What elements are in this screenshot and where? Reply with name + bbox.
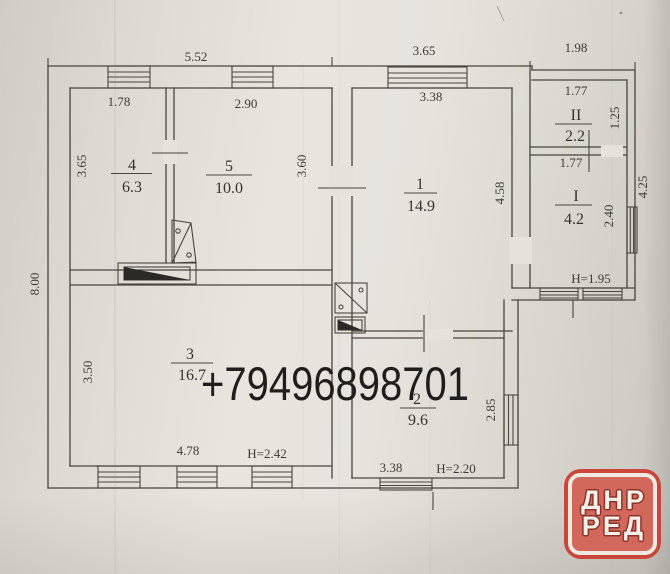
dim-room4-left: 3.65 [74,155,89,178]
agency-logo-inner: ДНР РЕД [568,473,657,555]
dim-room2-right: 2.85 [483,399,498,422]
dim-roomII-right: 1.25 [607,107,622,130]
room-II-area: 2.2 [565,128,585,145]
room-5-label: 5 10.0 [206,158,252,197]
agency-logo: ДНР РЕД [564,469,661,559]
room-II-label: II 2.2 [555,107,592,145]
room-II-number: II [571,107,582,124]
dim-room5-top: 2.90 [235,96,258,111]
dim-room5-right: 3.60 [294,155,309,178]
dim-room3-height: H=2.42 [247,446,286,461]
dim-left-800: 8.00 [27,273,42,296]
room-5-number: 5 [225,158,233,175]
room-2-area: 9.6 [408,412,428,429]
dim-roomI-right: 2.40 [601,205,616,228]
dim-roomII-top: 1.77 [565,83,588,98]
dim-room2-bottom: 3.38 [380,460,403,475]
window-bottom-room3-3 [252,466,292,488]
agency-logo-line2: РЕД [579,514,646,540]
room-I-area: 4.2 [564,211,584,228]
dim-room4-top: 1.78 [108,94,131,109]
phone-watermark: +79496898701 [201,357,469,410]
window-top-room1 [388,67,467,88]
room-I-label: I 4.2 [555,188,592,228]
floor-plan-scan: 5.52 3.65 1.98 8.00 1.78 2.90 3.65 3.60 … [0,0,670,574]
stove-room1 [335,283,367,333]
dim-room1-right: 4.58 [492,182,507,205]
dim-roomI-top: 1.77 [560,155,583,170]
window-bottom-room3-2 [177,466,217,488]
room-5-area: 10.0 [215,180,243,197]
hatch-annex-bottom-wall [540,288,622,300]
dim-annex-right: 4.25 [635,176,650,199]
stove-symbols [118,220,367,333]
dim-room1-top: 3.38 [420,89,443,104]
room-I-number: I [573,188,578,205]
room-4-area: 6.3 [122,179,142,196]
dim-top-552: 5.52 [185,49,208,64]
window-bottom-room3-1 [98,466,140,488]
room-4-number: 4 [128,157,136,174]
room-1-number: 1 [416,176,424,193]
room-3-number: 3 [186,346,194,363]
window-right-room2 [504,395,518,445]
room-1-area: 14.9 [407,198,435,215]
stove-room5 [118,220,196,284]
dim-top-365: 3.65 [413,43,436,58]
room-4-label: 4 6.3 [111,157,152,196]
dimension-labels: 5.52 3.65 1.98 8.00 1.78 2.90 3.65 3.60 … [27,40,650,476]
dim-room3-left: 3.50 [80,361,95,384]
room-1-label: 1 14.9 [404,176,437,215]
dim-room3-bottom: 4.78 [177,443,200,458]
dim-annex-height: H=1.95 [571,271,610,286]
dim-top-198: 1.98 [565,40,588,55]
dim-room2-height: H=2.20 [436,461,475,476]
window-top-room5 [232,66,273,88]
